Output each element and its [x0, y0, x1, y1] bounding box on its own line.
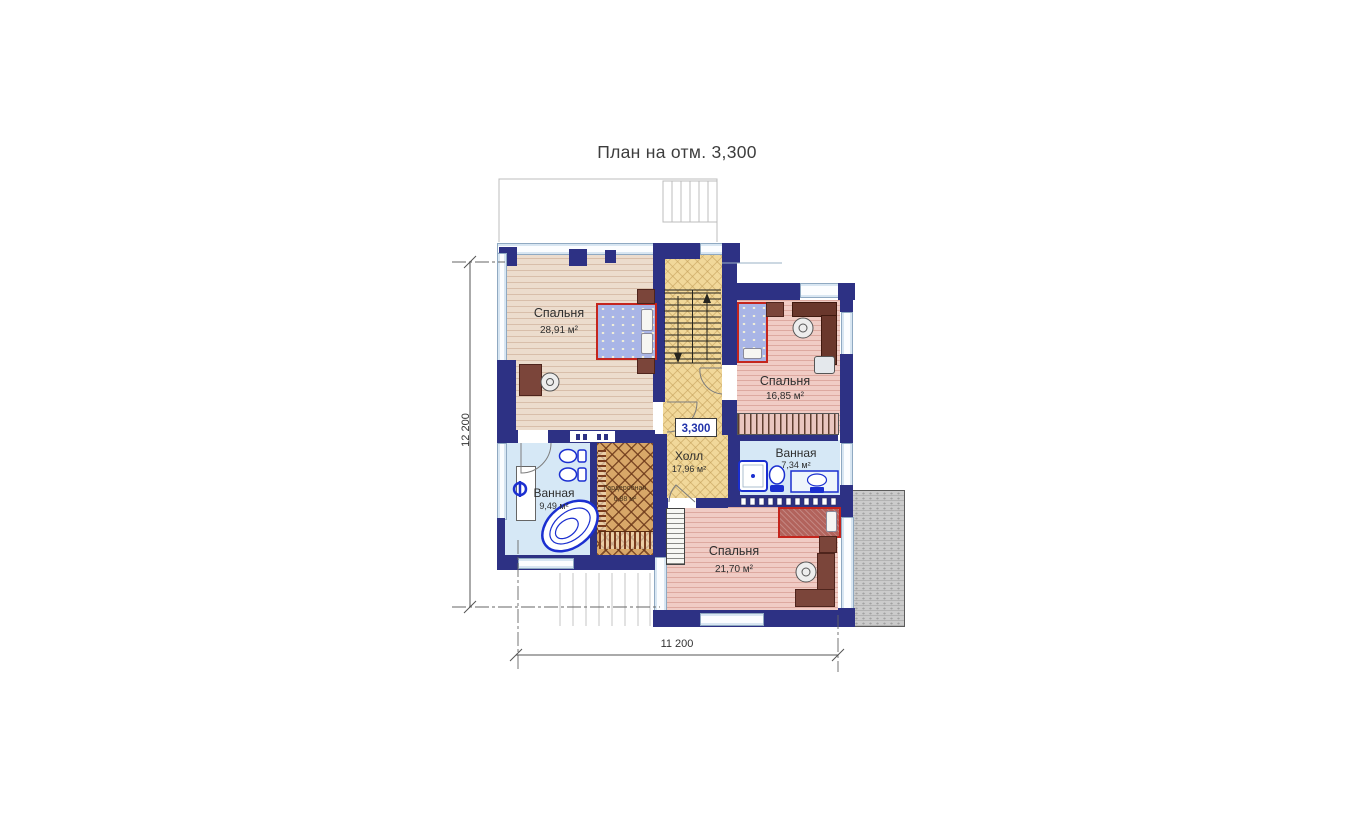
bed-bedroom3 — [778, 507, 841, 538]
bedroom2-area: 16,85 м² — [735, 391, 835, 402]
bathroom2-label: Ванная — [746, 446, 846, 460]
right-wall-lower — [840, 485, 853, 517]
bathroom2-area: 7,34 м² — [746, 460, 846, 470]
desk-bedroom1 — [519, 364, 542, 396]
core-right-wall-upper — [722, 263, 737, 365]
bathroom1-area: 9,49 м² — [504, 501, 604, 511]
bedroom3-area: 21,70 м² — [684, 564, 784, 575]
bedroom2-label: Спальня — [735, 374, 835, 388]
desk-bedroom3-return — [795, 589, 835, 607]
shelving-bedroom3 — [666, 508, 685, 565]
porch-stairs — [560, 573, 650, 626]
left-wall-solid — [497, 360, 516, 430]
core-right-wall-mid — [722, 400, 737, 435]
hall-label: Холл — [639, 449, 739, 463]
bedroom3-label: Спальня — [684, 544, 784, 558]
balcony-outline — [499, 179, 717, 242]
right-wall — [840, 354, 853, 443]
bedroom2-top-window — [800, 283, 840, 298]
wardrobe-hanger-row-bottom — [599, 531, 653, 549]
right-wall-block — [840, 300, 853, 312]
nightstand — [637, 358, 655, 374]
floor-plan-canvas: План на отм. 3,300 — [0, 0, 1350, 840]
wardrobe-area: 6,88 м² — [596, 496, 654, 503]
page-title: План на отм. 3,300 — [527, 142, 827, 163]
bedroom3-right-window — [841, 517, 854, 610]
closet-bedroom2 — [737, 413, 839, 435]
bathroom1-bottom-window — [518, 558, 574, 569]
nightstand — [766, 302, 784, 317]
dimension-vertical: 12 200 — [460, 400, 472, 460]
dimension-horizontal: 11 200 — [627, 638, 727, 650]
bed-bedroom2 — [737, 302, 768, 363]
bath1-door-gap — [518, 430, 548, 443]
bathroom1-label: Ванная — [504, 486, 604, 500]
stair-core-top-window — [700, 243, 724, 255]
bedroom2-corner — [838, 283, 855, 300]
left-window-band — [497, 253, 507, 362]
nightstand — [819, 536, 837, 553]
bedroom3-bottom-window — [700, 613, 764, 626]
wardrobe-label: Гардеробная — [596, 485, 654, 492]
hall-area: 17,96 м² — [639, 464, 739, 474]
bedroom1-label: Спальня — [509, 306, 609, 320]
elevation-mark: 3,300 — [675, 418, 717, 437]
column-block — [569, 249, 587, 266]
column-block — [605, 250, 616, 263]
left-wall-bottom — [497, 518, 505, 555]
left-corner-block — [497, 430, 505, 443]
stair-core-corner — [722, 243, 740, 263]
bedroom1-area: 28,91 м² — [509, 325, 609, 336]
terrace — [852, 490, 905, 627]
elevation-mark-value: 3,300 — [682, 423, 711, 435]
nightstand-light — [814, 356, 835, 374]
bedroom2-top-wall — [737, 283, 800, 300]
bedroom3-left-window — [654, 557, 667, 612]
bedroom3-door-gap — [668, 498, 696, 508]
bedroom2-right-window — [841, 312, 853, 356]
nightstand — [637, 289, 655, 304]
bathroom2-bottom-wall — [733, 495, 840, 507]
wardrobe-door-gap — [570, 431, 615, 442]
